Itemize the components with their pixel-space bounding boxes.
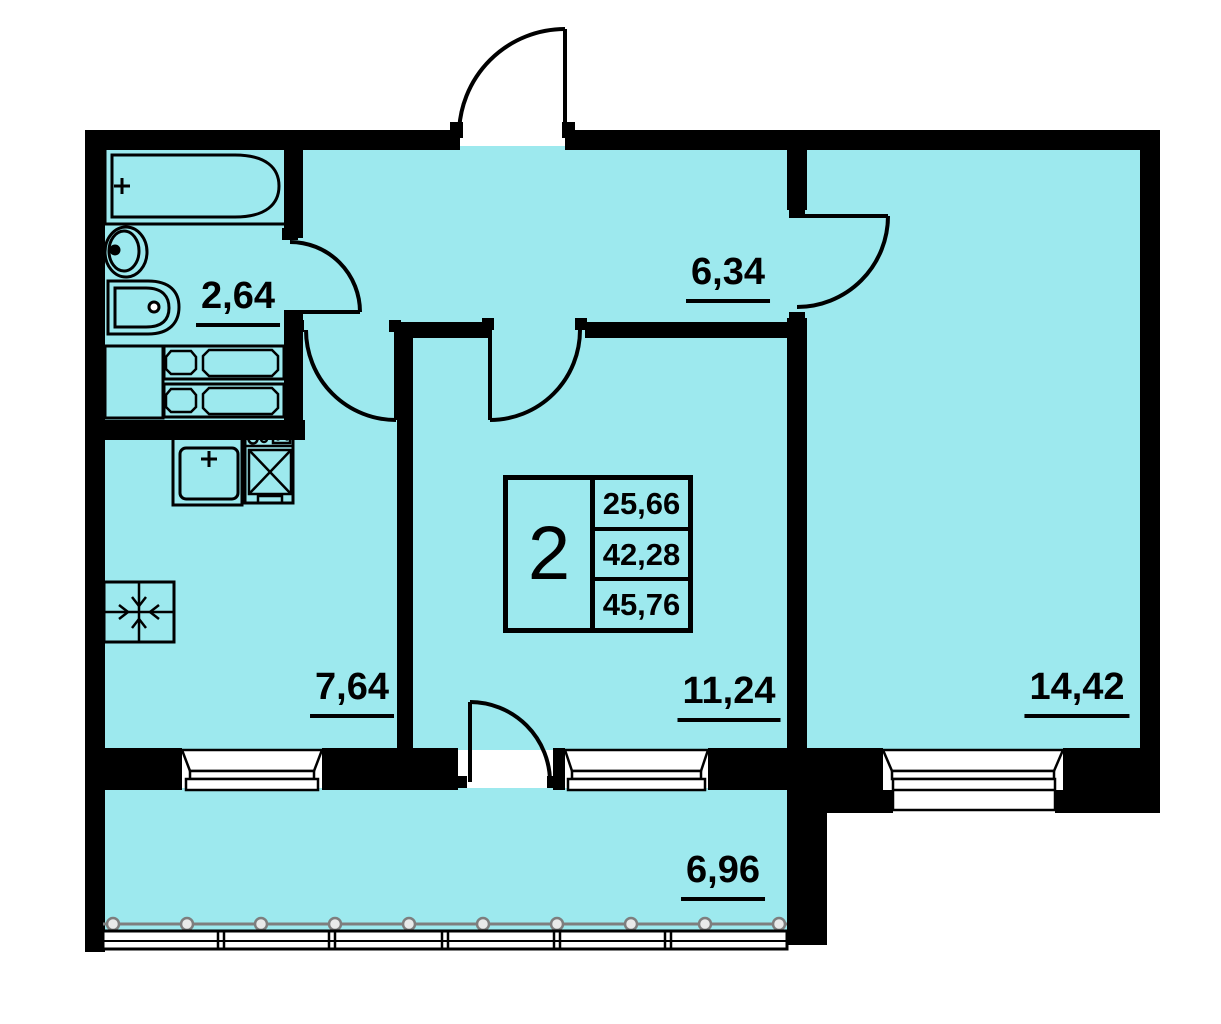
balcony-window [565,750,708,790]
kitchen-window [182,750,322,790]
floor-plan-page: 2,64 6,34 7,64 11,24 14,42 6,96 2 25,66 … [0,0,1221,1024]
entrance-door [459,29,565,138]
apartment-area-value: 42,28 [595,531,688,582]
bedroom-window [883,750,1063,810]
room-label-balcony: 6,96 [681,851,765,901]
apartment-info-box: 2 25,66 42,28 45,76 [503,475,693,633]
room-label-bedroom: 14,42 [1024,668,1129,718]
room-label-living-room: 11,24 [678,672,781,722]
balcony-glazing [103,918,787,949]
living-area-value: 25,66 [595,480,688,531]
rooms-count: 2 [508,480,595,628]
total-area-value: 45,76 [595,581,688,628]
room-label-bathroom: 2,64 [196,277,280,327]
room-label-kitchen: 7,64 [310,668,394,718]
room-label-hallway: 6,34 [686,253,770,303]
